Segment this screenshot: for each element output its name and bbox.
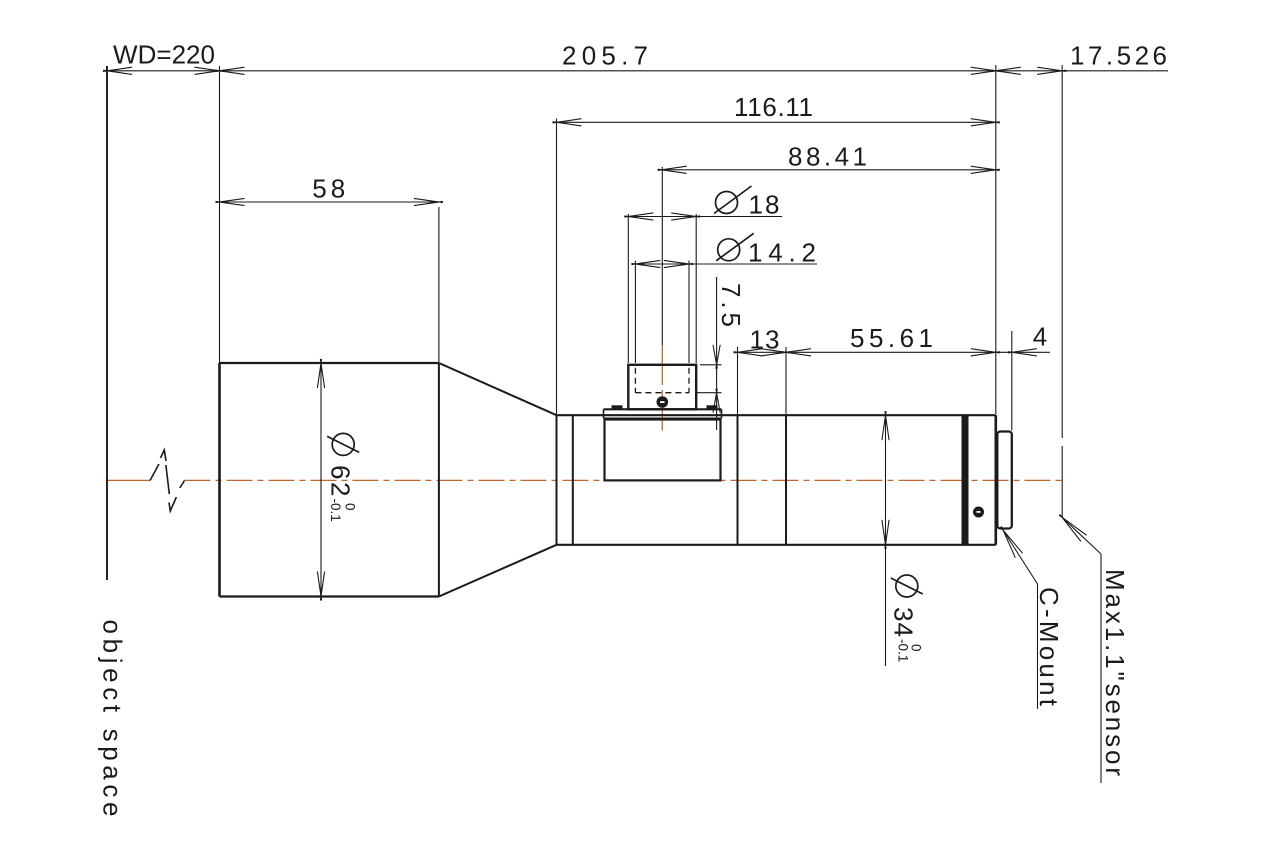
svg-text:14.2: 14.2 — [748, 238, 816, 268]
svg-text:Max1.1"sensor: Max1.1"sensor — [1100, 569, 1130, 776]
svg-text:88.41: 88.41 — [788, 142, 867, 172]
svg-text:55.61: 55.61 — [850, 323, 933, 353]
svg-text:17.526: 17.526 — [1070, 41, 1167, 71]
svg-text:WD=220: WD=220 — [113, 40, 215, 70]
svg-text:-0.1: -0.1 — [896, 639, 911, 662]
svg-text:-0.1: -0.1 — [328, 499, 343, 522]
svg-text:C-Mount: C-Mount — [1034, 587, 1064, 707]
svg-text:13: 13 — [750, 325, 780, 355]
svg-text:object space: object space — [98, 620, 128, 817]
svg-text:4: 4 — [1033, 322, 1047, 352]
svg-text:34: 34 — [889, 607, 919, 637]
svg-text:205.7: 205.7 — [562, 41, 648, 71]
svg-text:116.11: 116.11 — [734, 92, 813, 122]
svg-text:7.5: 7.5 — [716, 283, 746, 327]
svg-text:58: 58 — [312, 174, 345, 204]
svg-text:18: 18 — [749, 190, 780, 220]
svg-text:0: 0 — [343, 503, 358, 511]
